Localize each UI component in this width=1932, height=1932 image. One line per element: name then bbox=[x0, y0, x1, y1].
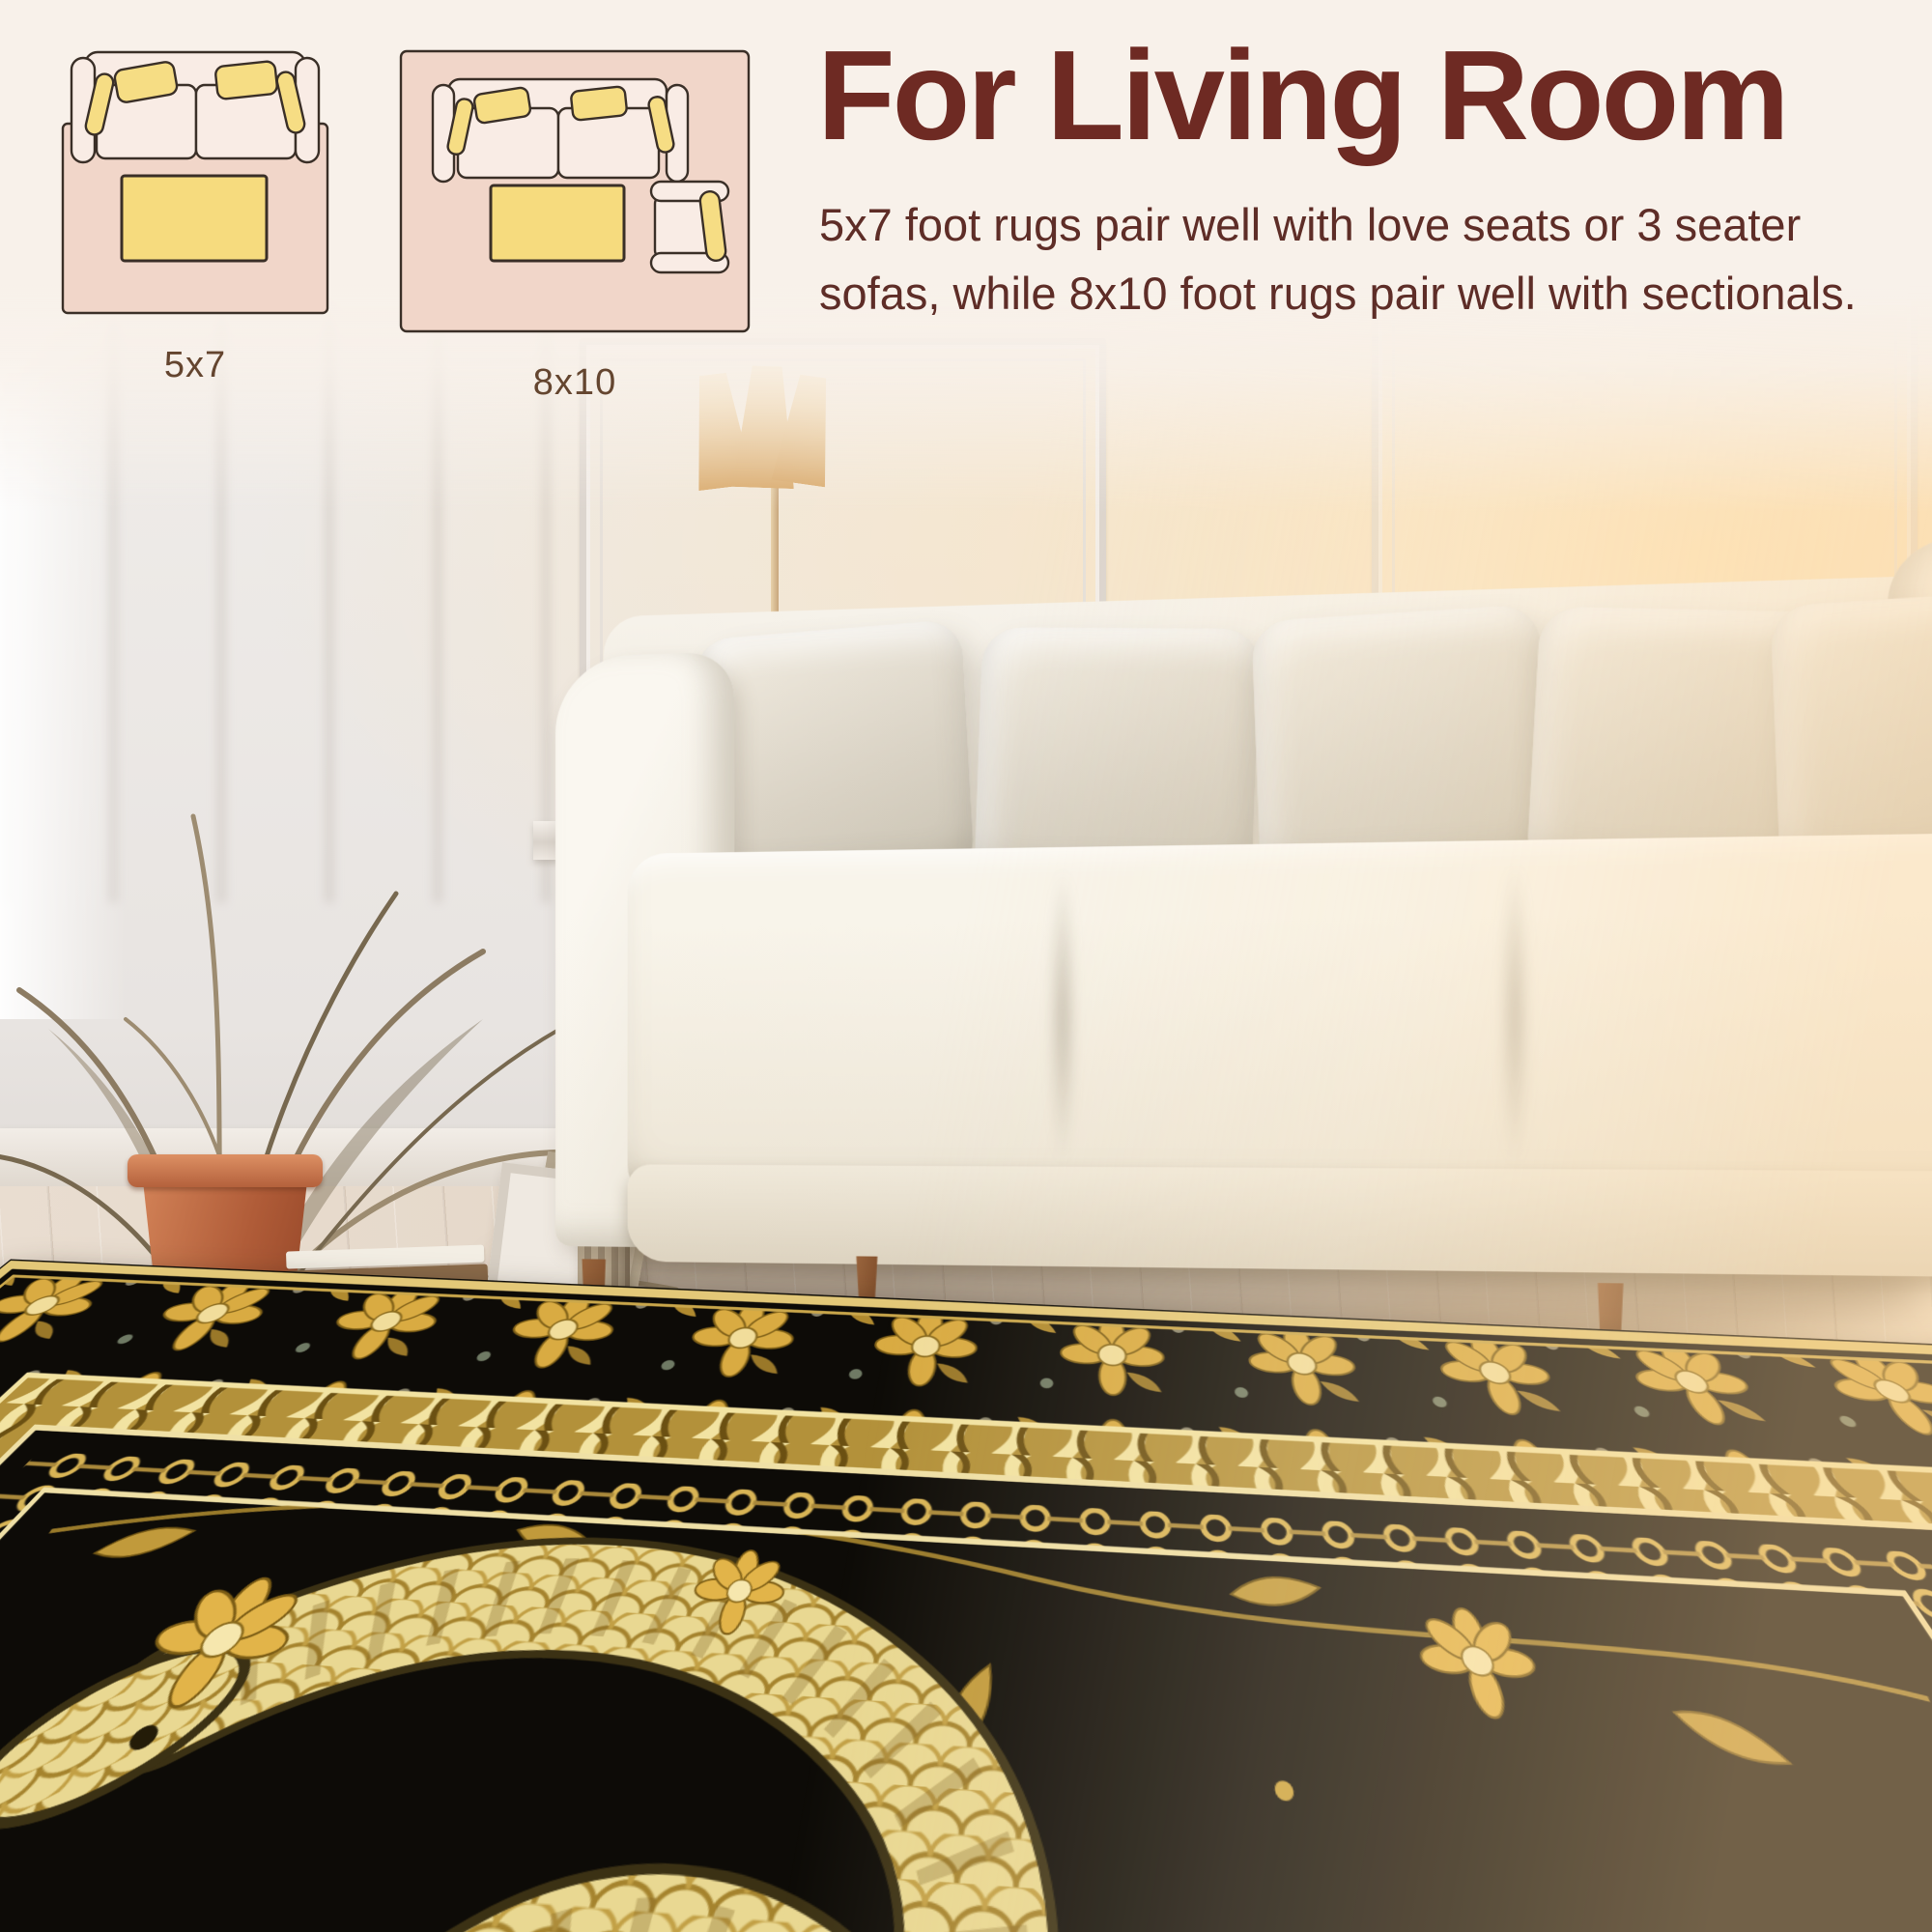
seat-seam bbox=[1501, 861, 1529, 1169]
living-room-photo bbox=[0, 285, 1932, 1932]
sofa-coffee-table-armchair-rug-top-view-icon bbox=[398, 48, 752, 334]
size-diagram-5x7: 5x7 bbox=[60, 48, 330, 386]
page-title: For Living Room bbox=[817, 29, 1787, 163]
rug-size-label-8x10: 8x10 bbox=[398, 362, 752, 404]
loveseat-coffee-table-rug-top-view-icon bbox=[60, 48, 330, 317]
seat-seam bbox=[1049, 867, 1076, 1166]
rug-size-label-5x7: 5x7 bbox=[60, 345, 330, 386]
rug-product-infographic: For Living Room 5x7 foot rugs pair well … bbox=[0, 0, 1932, 1932]
sofa-front-rail bbox=[628, 1164, 1932, 1278]
size-diagram-8x10: 8x10 bbox=[398, 48, 752, 404]
page-description: 5x7 foot rugs pair well with love seats … bbox=[819, 191, 1930, 327]
sofa-seat-cushions bbox=[628, 832, 1932, 1214]
terracotta-planter-rim bbox=[128, 1154, 323, 1187]
